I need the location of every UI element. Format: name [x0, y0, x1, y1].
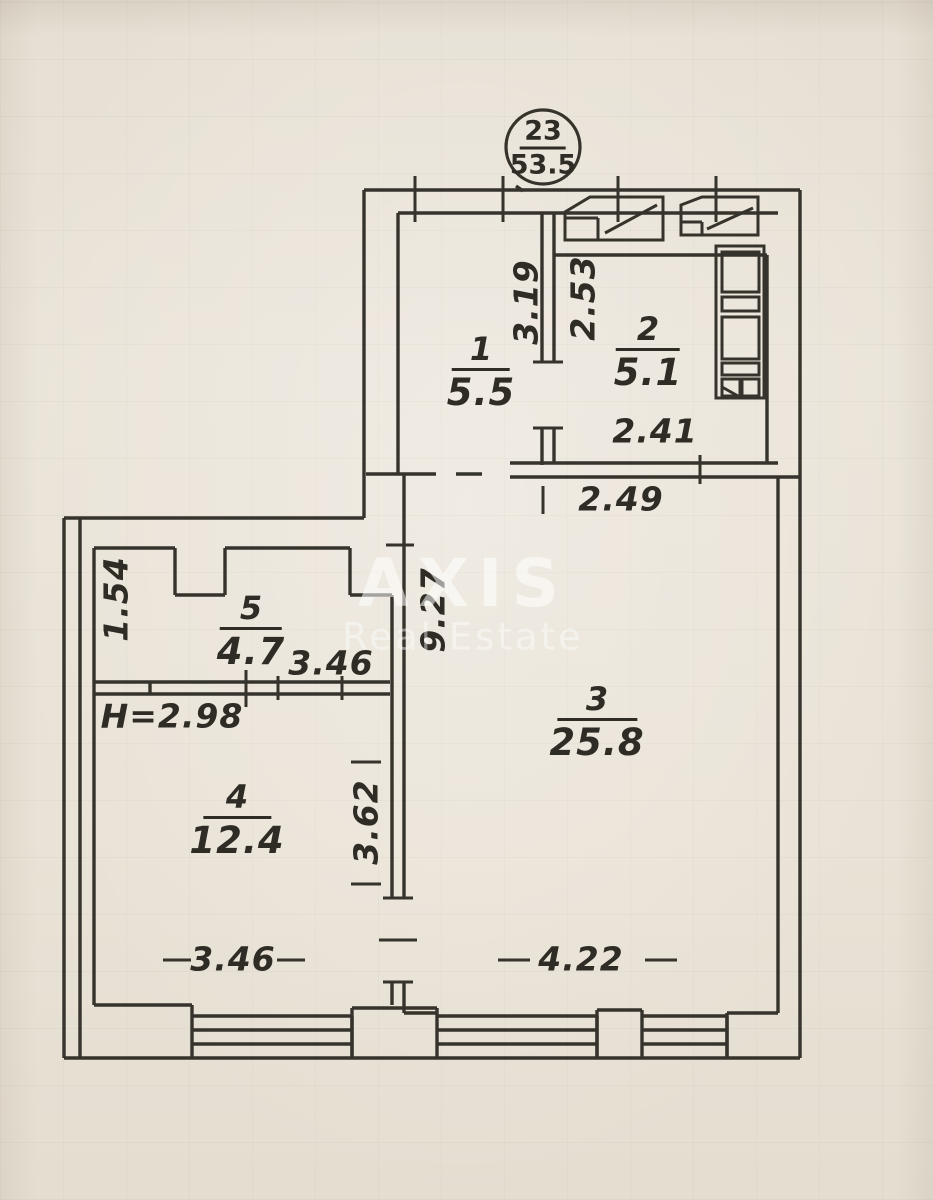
- dim-hallway-depth: 3.19: [510, 259, 543, 344]
- apartment-number: 23: [524, 118, 562, 145]
- kitchen-counter-fixtures: [565, 197, 758, 240]
- bathroom-column-fixtures: [716, 246, 764, 398]
- room-3-area: 25.8: [549, 724, 644, 761]
- room-5-number: 5: [240, 592, 262, 624]
- room-3-label: 3 25.8: [549, 683, 644, 761]
- room-1-label: 1 5.5: [447, 333, 516, 411]
- dim-closet-side: 1.54: [100, 556, 133, 641]
- dim-living-top-width: 2.49: [578, 483, 663, 516]
- unit-badge: 23 53.5: [510, 118, 577, 179]
- floor-plan-page: 23 53.5 1 5.5 2 5.1 3 25.8 4 12.4 5 4.7 …: [0, 0, 933, 1200]
- total-area: 53.5: [510, 152, 577, 179]
- dim-living-bottom-width: 4.22: [538, 943, 623, 976]
- room-2-area: 5.1: [614, 354, 683, 391]
- room-2-number: 2: [637, 313, 659, 345]
- room-4-label: 4 12.4: [189, 781, 284, 859]
- room-1-area: 5.5: [447, 374, 516, 411]
- room-3-number: 3: [586, 683, 608, 715]
- room-4-number: 4: [226, 781, 248, 813]
- room-2-label: 2 5.1: [614, 313, 683, 391]
- dim-kitchen-width: 2.41: [612, 415, 697, 448]
- dim-ceiling-height: H=2.98: [101, 700, 244, 733]
- watermark-brand: AXIS: [358, 551, 568, 617]
- window-bands: [192, 1008, 727, 1058]
- dim-kitchen-depth: 2.53: [567, 255, 600, 340]
- dim-bedroom-width: 3.46: [190, 943, 275, 976]
- room-5-area: 4.7: [217, 633, 286, 670]
- watermark-tagline: Real Estate: [342, 619, 584, 656]
- room-4-area: 12.4: [189, 822, 284, 859]
- dim-bedroom-depth: 3.62: [350, 779, 383, 864]
- room-5-label: 5 4.7: [217, 592, 286, 670]
- room-1-number: 1: [470, 333, 492, 365]
